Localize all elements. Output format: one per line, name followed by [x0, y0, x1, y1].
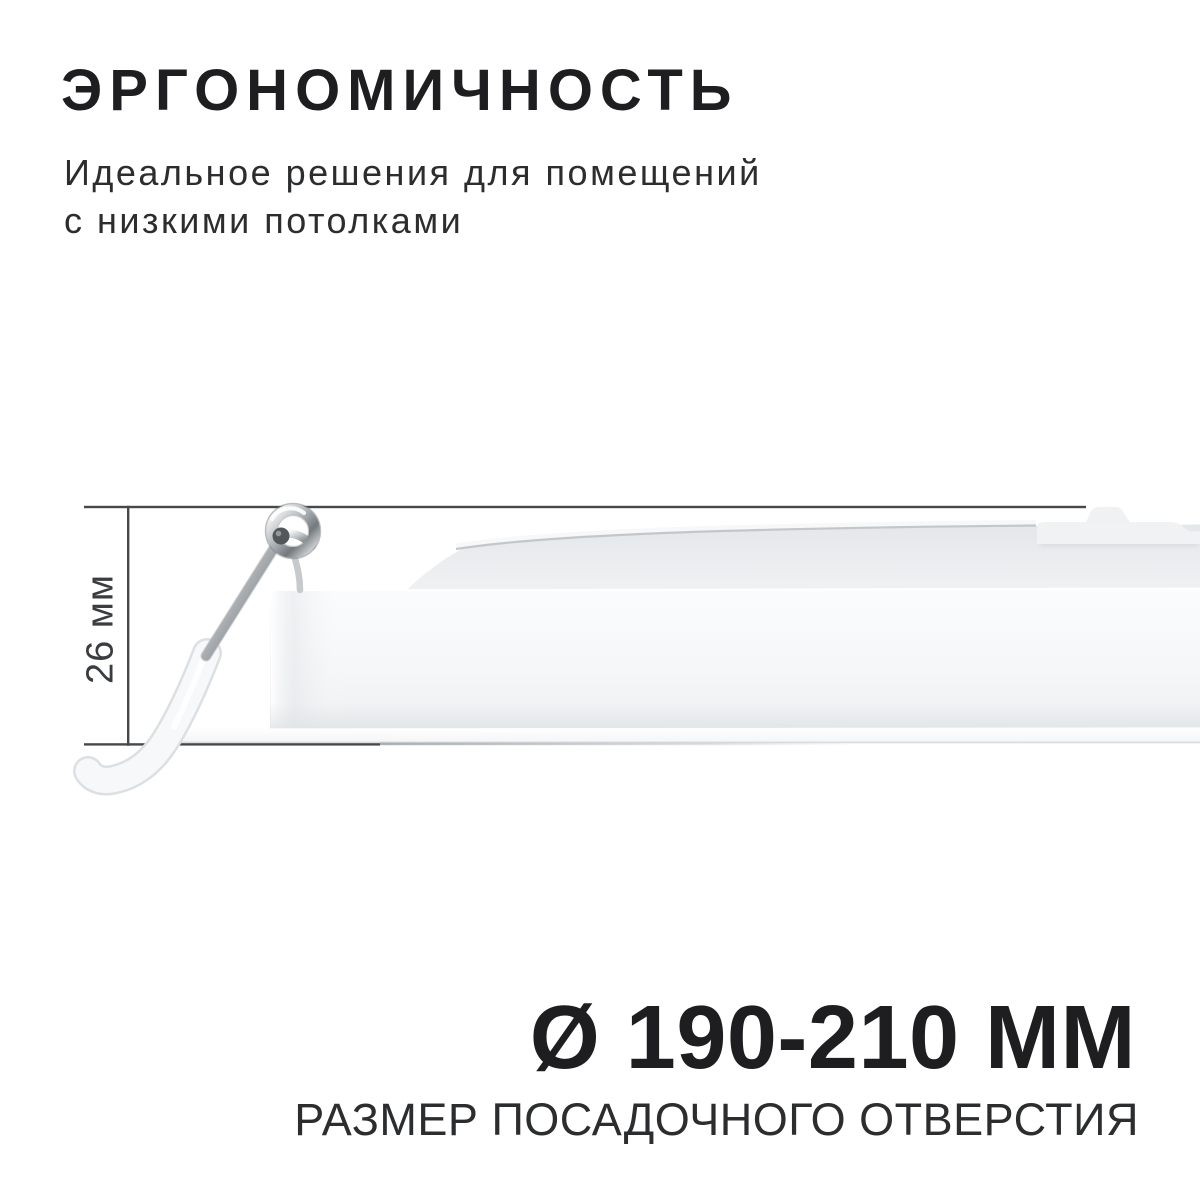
mounting-tab	[1086, 507, 1130, 522]
product-card: { "page": { "background": "#ffffff" }, "…	[0, 0, 1200, 1200]
clip-wire	[206, 537, 281, 656]
clip-pivot-pin	[273, 528, 290, 545]
dimension-line-bottom	[84, 743, 380, 745]
clip-pivot-highlight	[276, 531, 282, 537]
hole-diameter-value: Ø 190-210 ММ	[530, 993, 1136, 1083]
lamp	[177, 507, 1200, 745]
flange-shadow	[380, 743, 860, 746]
dimension-line-top	[84, 506, 1086, 508]
clip-hook	[294, 555, 300, 590]
dimension-line-vertical	[127, 506, 129, 746]
lamp-flange	[177, 728, 1200, 744]
height-dimension-label: 26 мм	[80, 574, 123, 684]
mounting-ledge	[1037, 522, 1200, 544]
lamp-body-bottom-shade	[270, 702, 1200, 729]
page: ЭРГОНОМИЧНОСТЬ Идеальное решения для пом…	[0, 0, 1200, 1200]
hole-diameter-caption: РАЗМЕР ПОСАДОЧНОГО ОТВЕРСТИЯ	[294, 1095, 1139, 1145]
